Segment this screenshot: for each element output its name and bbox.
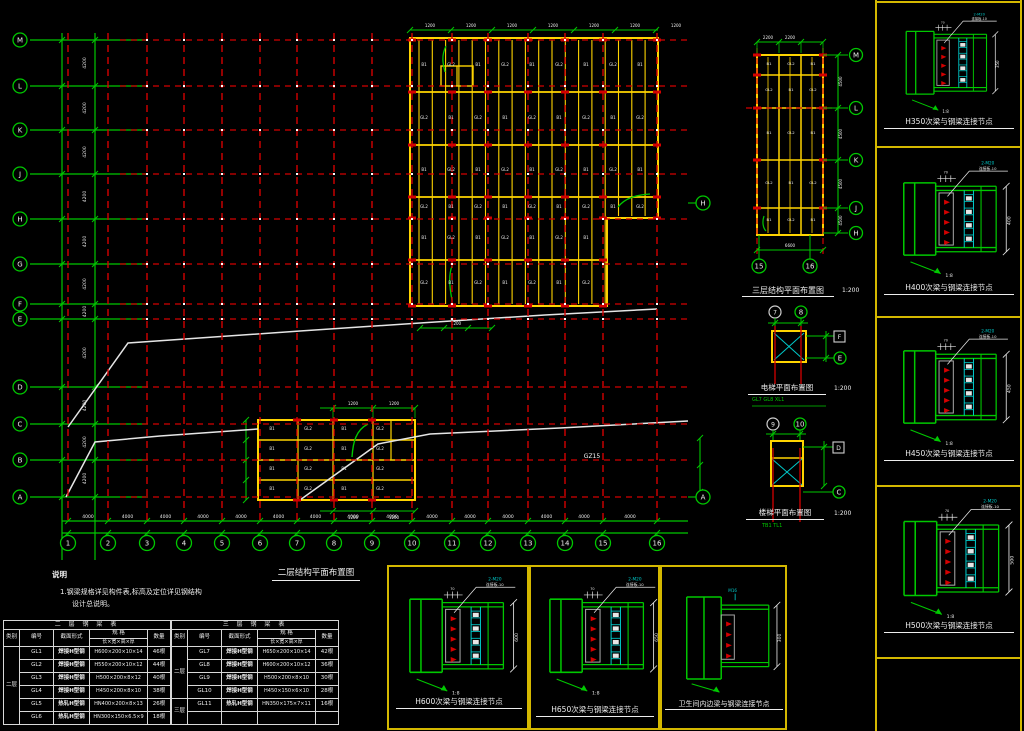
svg-text:GL2: GL2	[582, 280, 590, 285]
svg-text:70: 70	[590, 587, 594, 591]
svg-text:15: 15	[755, 262, 764, 270]
svg-text:连接板-10: 连接板-10	[972, 16, 987, 21]
table-cell: GL11	[188, 699, 222, 712]
svg-text:GL2: GL2	[420, 204, 428, 209]
cell-section-type: 焊接H型钢	[54, 660, 90, 673]
table-group-header: 三 层 钢 梁 表	[172, 621, 339, 630]
svg-text:M16: M16	[728, 588, 737, 593]
svg-text:GZ15: GZ15	[584, 453, 601, 460]
svg-text:GL2: GL2	[555, 62, 563, 67]
col-header-size: 规 格	[90, 630, 148, 639]
svg-text:H: H	[700, 199, 705, 207]
svg-text:GL2: GL2	[528, 204, 536, 209]
table-cell: GL2	[20, 660, 54, 673]
svg-text:B: B	[18, 456, 23, 464]
strip-plan-title: 三层结构平面布置图	[742, 286, 834, 297]
svg-text:B1: B1	[529, 167, 535, 172]
svg-text:4000: 4000	[82, 514, 94, 520]
svg-text:B1: B1	[341, 426, 347, 431]
row-span-category: 二层	[172, 647, 188, 699]
svg-text:13: 13	[524, 539, 533, 547]
svg-text:GL2: GL2	[304, 466, 312, 471]
svg-text:GL2: GL2	[765, 87, 773, 92]
svg-text:4200: 4200	[82, 436, 88, 448]
cell-size: HN400×200×8×13	[90, 699, 148, 712]
stair-plan-detail: 910DC	[766, 418, 845, 522]
svg-text:GL2: GL2	[376, 486, 384, 491]
svg-text:4500: 4500	[838, 76, 843, 87]
cell-section-type: 焊接H型钢	[222, 673, 258, 686]
svg-text:C: C	[18, 420, 23, 428]
svg-text:70: 70	[944, 171, 948, 175]
elevator-legend: GL7 GL8 XL1	[752, 398, 784, 404]
svg-text:500: 500	[1009, 556, 1015, 565]
svg-text:4000: 4000	[197, 514, 209, 520]
svg-text:D: D	[17, 383, 22, 391]
svg-text:1200: 1200	[389, 401, 400, 406]
svg-text:4000: 4000	[624, 514, 636, 520]
svg-text:16: 16	[806, 262, 815, 270]
svg-text:1200: 1200	[348, 401, 359, 406]
stair-plan-scale: 1:200	[834, 511, 851, 518]
svg-text:1:8: 1:8	[452, 690, 460, 696]
svg-text:70: 70	[450, 587, 454, 591]
svg-text:B1: B1	[556, 204, 562, 209]
svg-text:B1: B1	[341, 486, 347, 491]
svg-text:B1: B1	[583, 62, 589, 67]
svg-text:M: M	[853, 51, 859, 59]
svg-text:E: E	[18, 315, 22, 323]
svg-text:GL2: GL2	[765, 180, 773, 185]
table-cell: GL6	[20, 712, 54, 725]
table-cell: 38根	[148, 686, 171, 699]
detail-h400: 400702-M20连接板-101:8	[904, 160, 1013, 279]
cell-section-type: 热轧H型钢	[222, 699, 258, 712]
svg-text:4200: 4200	[82, 278, 88, 290]
table-cell: GL3	[20, 673, 54, 686]
elevator-plan-title: 电梯平面布置图	[748, 384, 826, 395]
svg-text:4000: 4000	[578, 514, 590, 520]
svg-text:15: 15	[599, 539, 608, 547]
svg-text:1200: 1200	[389, 515, 400, 520]
table-cell: 26根	[148, 699, 171, 712]
cell-size: H550×200×10×12	[90, 660, 148, 673]
svg-text:GL2: GL2	[447, 235, 455, 240]
svg-text:H: H	[853, 229, 858, 237]
col-header-mark: 编号	[188, 630, 222, 647]
svg-text:B1: B1	[421, 235, 427, 240]
svg-text:B1: B1	[448, 204, 454, 209]
svg-text:B1: B1	[556, 280, 562, 285]
svg-text:B1: B1	[341, 446, 347, 451]
table-cell: GL4	[20, 686, 54, 699]
svg-text:连接板-10: 连接板-10	[626, 582, 644, 587]
table-cell: 30根	[316, 673, 339, 686]
svg-text:连接板-10: 连接板-10	[979, 334, 997, 339]
svg-text:G: G	[17, 260, 22, 268]
cell-size: H600×200×10×14	[90, 647, 148, 660]
svg-text:GL2: GL2	[501, 62, 509, 67]
svg-text:4200: 4200	[82, 306, 88, 318]
stair-plan-title: 楼梯平面布置图	[746, 509, 824, 520]
table-cell: 16根	[316, 699, 339, 712]
svg-text:GL2: GL2	[501, 167, 509, 172]
svg-text:GL2: GL2	[609, 167, 617, 172]
svg-text:4000: 4000	[122, 514, 134, 520]
svg-text:1200: 1200	[671, 23, 682, 28]
col-header-qty: 数量	[148, 630, 171, 647]
svg-text:B1: B1	[637, 167, 643, 172]
svg-text:A: A	[18, 493, 23, 501]
svg-text:L: L	[854, 104, 858, 112]
svg-text:GL2: GL2	[636, 115, 644, 120]
svg-text:8: 8	[799, 308, 803, 316]
panel-title-h650: H650次梁与钢梁连接节点	[536, 706, 654, 717]
svg-text:E: E	[838, 354, 842, 362]
svg-text:D: D	[836, 445, 841, 452]
svg-text:4200: 4200	[82, 102, 88, 114]
svg-text:450: 450	[1006, 384, 1012, 393]
svg-text:GL2: GL2	[304, 426, 312, 431]
svg-text:B1: B1	[766, 61, 772, 66]
svg-text:3: 3	[145, 539, 149, 547]
cell-size: H450×200×8×10	[90, 686, 148, 699]
svg-text:4000: 4000	[464, 514, 476, 520]
cell-section-type: 焊接H型钢	[222, 660, 258, 673]
elevator-plan-scale: 1:200	[834, 386, 851, 393]
svg-text:GL2: GL2	[787, 217, 795, 222]
row-span-category: 二层	[4, 647, 20, 725]
svg-text:600: 600	[514, 633, 520, 642]
svg-text:B1: B1	[583, 235, 589, 240]
beam-schedule: 二 层 钢 梁 表类别编号截面形式规 格数量长×宽×高×厚二层GL1焊接H型钢H…	[3, 620, 339, 725]
table-cell: 44根	[148, 660, 171, 673]
cell-size	[258, 712, 316, 725]
svg-text:GL2: GL2	[376, 466, 384, 471]
svg-text:A: A	[701, 493, 706, 501]
col-header-size-sub: 长×宽×高×厚	[90, 639, 148, 647]
beam-schedule-right: 三 层 钢 梁 表类别编号截面形式规 格数量长×宽×高×厚二层GL7焊接H型钢H…	[171, 620, 339, 725]
svg-text:650: 650	[654, 633, 660, 642]
notes-line-2: 设计总说明。	[72, 600, 114, 608]
col-header-size: 规 格	[258, 630, 316, 639]
svg-text:GL2: GL2	[582, 204, 590, 209]
svg-text:7: 7	[295, 539, 299, 547]
svg-text:GL2: GL2	[636, 204, 644, 209]
panel-title-h500: H500次梁与钢梁连接节点	[884, 622, 1014, 633]
svg-text:14: 14	[561, 539, 570, 547]
cell-size: H500×200×8×12	[90, 673, 148, 686]
svg-text:GL2: GL2	[474, 280, 482, 285]
svg-text:GL2: GL2	[376, 446, 384, 451]
svg-text:4500: 4500	[838, 128, 843, 139]
beam-schedule-left: 二 层 钢 梁 表类别编号截面形式规 格数量长×宽×高×厚二层GL1焊接H型钢H…	[3, 620, 171, 725]
svg-text:70: 70	[941, 20, 945, 24]
svg-text:K: K	[854, 156, 859, 164]
svg-text:4500: 4500	[838, 215, 843, 226]
svg-text:B1: B1	[788, 87, 794, 92]
col-header-category: 类别	[172, 630, 188, 647]
table-cell: 42根	[316, 647, 339, 660]
svg-text:1200: 1200	[589, 23, 600, 28]
svg-text:GL2: GL2	[609, 62, 617, 67]
svg-text:2-M20: 2-M20	[981, 160, 994, 165]
svg-text:GL2: GL2	[809, 180, 817, 185]
svg-text:1200: 1200	[425, 23, 436, 28]
svg-text:B1: B1	[502, 204, 508, 209]
svg-text:GL2: GL2	[304, 446, 312, 451]
col-header-size-sub: 长×宽×高×厚	[258, 639, 316, 647]
svg-text:4200: 4200	[82, 146, 88, 158]
panel-title-h400: H400次梁与钢梁连接节点	[884, 284, 1014, 295]
svg-text:K: K	[18, 126, 23, 134]
svg-text:B1: B1	[529, 235, 535, 240]
svg-text:B1: B1	[448, 115, 454, 120]
svg-text:GL2: GL2	[501, 235, 509, 240]
svg-text:1200: 1200	[466, 23, 477, 28]
panel-title-h600: H600次梁与钢梁连接节点	[396, 698, 522, 709]
svg-text:4000: 4000	[502, 514, 514, 520]
svg-text:4000: 4000	[426, 514, 438, 520]
cell-size: H650×200×10×14	[258, 647, 316, 660]
notes-line-1: 1.钢梁规格详见构件表,标高及定位详见钢结构	[60, 588, 202, 596]
svg-text:9: 9	[771, 422, 775, 429]
svg-text:B1: B1	[788, 180, 794, 185]
row-span-category: 三层	[172, 699, 188, 725]
svg-text:1:8: 1:8	[592, 690, 600, 696]
svg-text:B1: B1	[610, 204, 616, 209]
svg-text:C: C	[837, 488, 842, 496]
table-cell: GL9	[188, 673, 222, 686]
svg-text:M: M	[17, 36, 23, 44]
detail-h650: 650702-M20连接板-101:8	[550, 577, 660, 697]
svg-text:10: 10	[796, 420, 805, 428]
col-header-category: 类别	[4, 630, 20, 647]
svg-text:GL2: GL2	[528, 115, 536, 120]
svg-text:GL2: GL2	[304, 486, 312, 491]
panel-title-h350: H350次梁与钢梁连接节点	[884, 118, 1014, 129]
svg-text:GL2: GL2	[474, 115, 482, 120]
svg-text:GL2: GL2	[555, 235, 563, 240]
svg-text:1200: 1200	[548, 23, 559, 28]
svg-text:1200: 1200	[348, 515, 359, 520]
svg-text:B1: B1	[448, 280, 454, 285]
cell-section-type: 焊接H型钢	[54, 647, 90, 660]
svg-text:GL2: GL2	[447, 167, 455, 172]
svg-text:B1: B1	[637, 62, 643, 67]
svg-text:连接板-10: 连接板-10	[979, 166, 997, 171]
detail-wc-edge-beam: 300M16	[687, 588, 783, 692]
svg-text:GL2: GL2	[474, 204, 482, 209]
svg-text:4: 4	[182, 539, 187, 547]
cell-size: H450×150×6×10	[258, 686, 316, 699]
svg-text:B1: B1	[610, 115, 616, 120]
table-cell: GL7	[188, 647, 222, 660]
svg-text:4000: 4000	[310, 514, 322, 520]
table-cell	[316, 712, 339, 725]
grid-intersection-dots	[146, 39, 658, 320]
svg-text:B1: B1	[421, 62, 427, 67]
cell-section-type: 热轧H型钢	[54, 712, 90, 725]
svg-text:4200: 4200	[82, 347, 88, 359]
svg-text:B1: B1	[421, 167, 427, 172]
green-axis-lines: 4200420042004200420042004200420042004200…	[30, 33, 703, 560]
svg-text:1:8: 1:8	[945, 273, 952, 279]
col-header-section-type: 截面形式	[222, 630, 258, 647]
svg-text:2200: 2200	[785, 35, 796, 40]
svg-text:B1: B1	[475, 167, 481, 172]
svg-text:B1: B1	[502, 115, 508, 120]
col-header-mark: 编号	[20, 630, 54, 647]
svg-text:4500: 4500	[838, 178, 843, 189]
table-cell: 46根	[148, 647, 171, 660]
svg-text:6600: 6600	[785, 243, 796, 248]
svg-text:B1: B1	[766, 130, 772, 135]
svg-text:70: 70	[944, 339, 948, 343]
svg-text:GL2: GL2	[420, 280, 428, 285]
svg-text:1:8: 1:8	[945, 441, 952, 447]
svg-text:L: L	[18, 82, 22, 90]
svg-text:B1: B1	[810, 217, 816, 222]
svg-text:GL2: GL2	[528, 280, 536, 285]
table-cell: GL5	[20, 699, 54, 712]
svg-text:B1: B1	[475, 235, 481, 240]
svg-text:B1: B1	[269, 466, 275, 471]
cell-section-type: 焊接H型钢	[54, 673, 90, 686]
svg-text:350: 350	[995, 60, 1000, 68]
svg-text:1200: 1200	[507, 23, 518, 28]
svg-text:8: 8	[332, 539, 336, 547]
svg-text:连接板-10: 连接板-10	[486, 582, 504, 587]
svg-text:2200: 2200	[763, 35, 774, 40]
cell-section-type	[222, 712, 258, 725]
svg-text:16: 16	[653, 539, 662, 547]
cell-size: HN350×175×7×11	[258, 699, 316, 712]
svg-text:B1: B1	[269, 446, 275, 451]
svg-text:4000: 4000	[235, 514, 247, 520]
detail-h500: 500702-M20连接板-101:8	[904, 499, 1015, 620]
svg-text:H: H	[17, 215, 22, 223]
notes-heading: 说明	[52, 571, 67, 580]
svg-text:2-M20: 2-M20	[981, 328, 994, 333]
svg-text:GL2: GL2	[582, 115, 590, 120]
svg-text:1:8: 1:8	[942, 109, 949, 114]
svg-text:GL2: GL2	[555, 167, 563, 172]
cell-section-type: 焊接H型钢	[54, 686, 90, 699]
table-cell: GL8	[188, 660, 222, 673]
svg-text:GL2: GL2	[376, 426, 384, 431]
detail-h600: 600702-M20连接板-101:8	[410, 577, 520, 697]
svg-text:4000: 4000	[273, 514, 285, 520]
svg-text:B1: B1	[810, 130, 816, 135]
svg-text:2: 2	[106, 539, 110, 547]
svg-text:B1: B1	[583, 167, 589, 172]
cell-size: HN300×150×6.5×9	[90, 712, 148, 725]
svg-text:4000: 4000	[160, 514, 172, 520]
svg-text:连接板-10: 连接板-10	[981, 504, 999, 509]
svg-text:6: 6	[258, 539, 263, 547]
svg-text:GL2: GL2	[809, 87, 817, 92]
boundary-polyline	[68, 309, 657, 427]
panel-title-h450: H450次梁与钢梁连接节点	[884, 450, 1014, 461]
svg-text:B1: B1	[810, 61, 816, 66]
svg-text:B1: B1	[341, 466, 347, 471]
svg-text:10: 10	[408, 539, 417, 547]
cell-section-type: 焊接H型钢	[222, 647, 258, 660]
svg-text:F: F	[838, 334, 842, 341]
table-cell: 28根	[316, 686, 339, 699]
detail-h350: 350702-M20连接板-101:8	[906, 12, 1000, 114]
svg-text:4000: 4000	[541, 514, 553, 520]
svg-text:B1: B1	[475, 62, 481, 67]
svg-text:1: 1	[66, 539, 70, 547]
strip-plan-third-floor: B1GL2B1GL2B1GL2B1GL2B1GL2B1GL2B1GL2B1M45…	[746, 35, 863, 273]
col-header-qty: 数量	[316, 630, 339, 647]
cell-section-type: 热轧H型钢	[54, 699, 90, 712]
svg-text:J: J	[854, 204, 857, 212]
svg-text:400: 400	[1006, 216, 1012, 225]
svg-text:7: 7	[773, 310, 777, 317]
stair-legend: TB1 TL1	[762, 524, 782, 530]
table-cell: GL1	[20, 647, 54, 660]
table-cell: 18根	[148, 712, 171, 725]
plan-title: 二层结构平面布置图	[272, 569, 360, 581]
detail-h450: 450702-M20连接板-101:8	[904, 328, 1013, 447]
svg-text:GL2: GL2	[787, 130, 795, 135]
panel-title-wc-beam: 卫生间内边梁与钢梁连接节点	[665, 700, 783, 710]
svg-text:1:8: 1:8	[947, 614, 955, 620]
svg-text:B1: B1	[269, 486, 275, 491]
framing-plan-upper	[410, 38, 658, 306]
cell-section-type: 焊接H型钢	[222, 686, 258, 699]
svg-text:B1: B1	[502, 280, 508, 285]
svg-text:4200: 4200	[82, 236, 88, 248]
svg-text:GL2: GL2	[447, 62, 455, 67]
cell-size: H600×200×10×12	[258, 660, 316, 673]
svg-text:4200: 4200	[82, 191, 88, 203]
svg-text:300: 300	[777, 634, 783, 643]
table-cell: 40根	[148, 673, 171, 686]
svg-text:B1: B1	[529, 62, 535, 67]
svg-text:5: 5	[220, 539, 224, 547]
table-group-header: 二 层 钢 梁 表	[4, 621, 171, 630]
svg-text:B1: B1	[269, 426, 275, 431]
svg-text:F: F	[18, 300, 22, 308]
svg-text:2-M20: 2-M20	[974, 12, 986, 16]
svg-text:4200: 4200	[82, 57, 88, 69]
svg-text:11: 11	[448, 539, 457, 547]
svg-text:B1: B1	[766, 217, 772, 222]
svg-text:4200: 4200	[82, 473, 88, 485]
svg-text:12: 12	[484, 539, 493, 547]
svg-text:J: J	[18, 170, 21, 178]
svg-text:1200: 1200	[630, 23, 641, 28]
cell-size: H500×200×8×10	[258, 673, 316, 686]
strip-plan-scale: 1:200	[842, 288, 859, 295]
svg-text:GL2: GL2	[420, 115, 428, 120]
table-cell	[188, 712, 222, 725]
col-header-section-type: 截面形式	[54, 630, 90, 647]
table-cell: 36根	[316, 660, 339, 673]
cad-drawing-canvas: 4200420042004200420042004200420042004200…	[0, 0, 1024, 731]
svg-text:GL2: GL2	[787, 61, 795, 66]
table-cell: GL10	[188, 686, 222, 699]
svg-text:B1: B1	[556, 115, 562, 120]
svg-text:70: 70	[945, 509, 949, 513]
white-boundary-polylines	[66, 309, 688, 500]
svg-text:9: 9	[370, 539, 374, 547]
